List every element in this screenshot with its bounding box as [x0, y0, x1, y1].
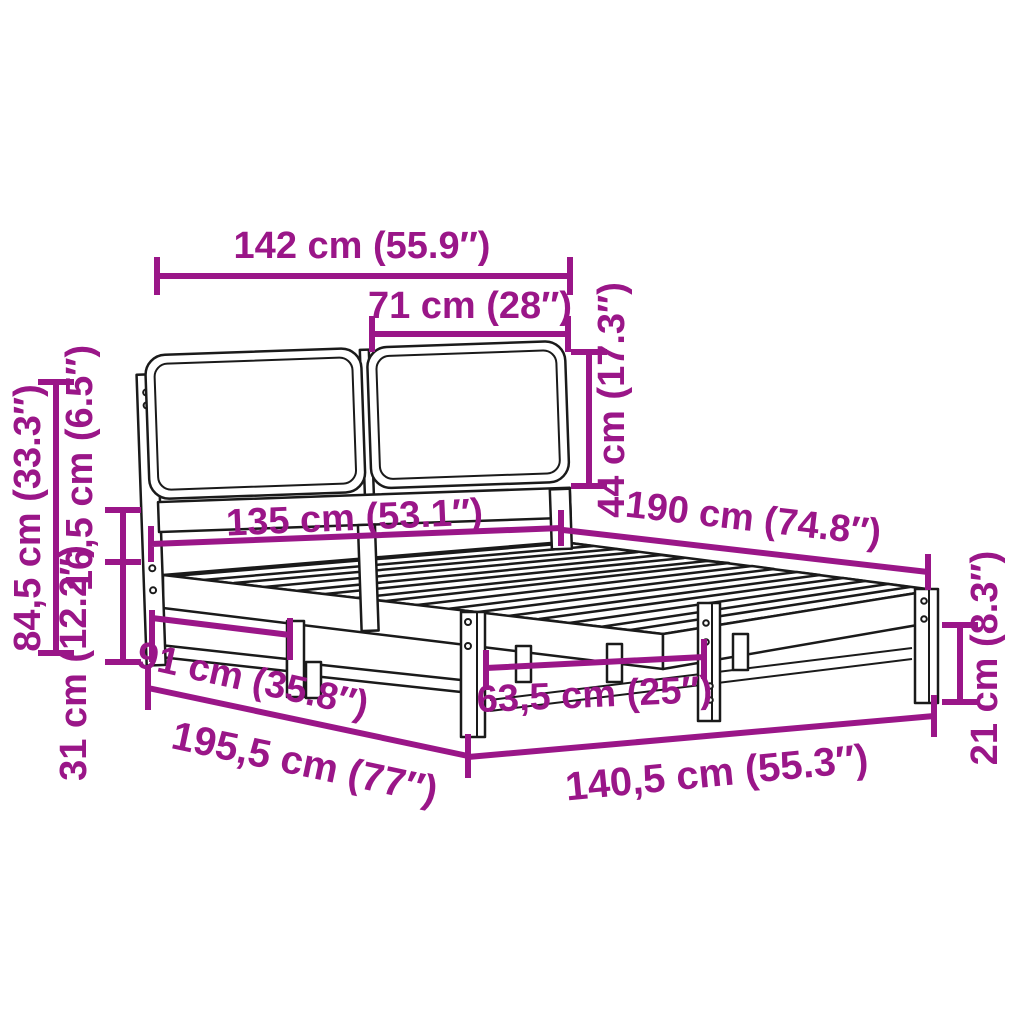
far-leg	[733, 634, 748, 670]
dim-label-total-length: 195,5 cm (77″)	[168, 714, 442, 813]
dim-line	[105, 510, 141, 662]
screw-icon	[465, 643, 471, 649]
dim-label-frame-height: 31 cm (12.2″)	[53, 545, 95, 781]
headboard-right-cushion	[367, 341, 570, 489]
headboard-center-post-lower	[358, 525, 379, 632]
screw-icon	[921, 616, 927, 622]
screw-icon	[150, 587, 156, 593]
dim-label-leg-spacing: 63,5 cm (25″)	[476, 669, 713, 721]
dim-underbed-clearance: 21 cm (8.3″)	[942, 551, 1006, 766]
rear-right-leg	[915, 589, 938, 703]
dim-label-underbed-clearance: 21 cm (8.3″)	[964, 551, 1006, 766]
screw-icon	[465, 619, 471, 625]
bed-dimension-diagram: 142 cm (55.9″) 71 cm (28″) 44 cm (17.3″)…	[0, 0, 1024, 1024]
dim-headboard-panel-height: 44 cm (17.3″)	[571, 282, 633, 518]
dim-label-headboard-total-height: 84,5 cm (33.3″)	[7, 384, 49, 651]
dim-label-headboard-panel-height: 44 cm (17.3″)	[591, 282, 633, 518]
dim-label-headboard-panel-width: 71 cm (28″)	[368, 285, 572, 327]
dim-side-rail-height: 16,5 cm (6.5″) 31 cm (12.2″)	[53, 345, 141, 781]
screw-icon	[149, 565, 155, 571]
screw-icon	[703, 620, 709, 626]
screw-icon	[921, 598, 927, 604]
headboard-left-cushion	[145, 348, 366, 499]
dim-label-headboard-width: 142 cm (55.9″)	[234, 225, 491, 267]
